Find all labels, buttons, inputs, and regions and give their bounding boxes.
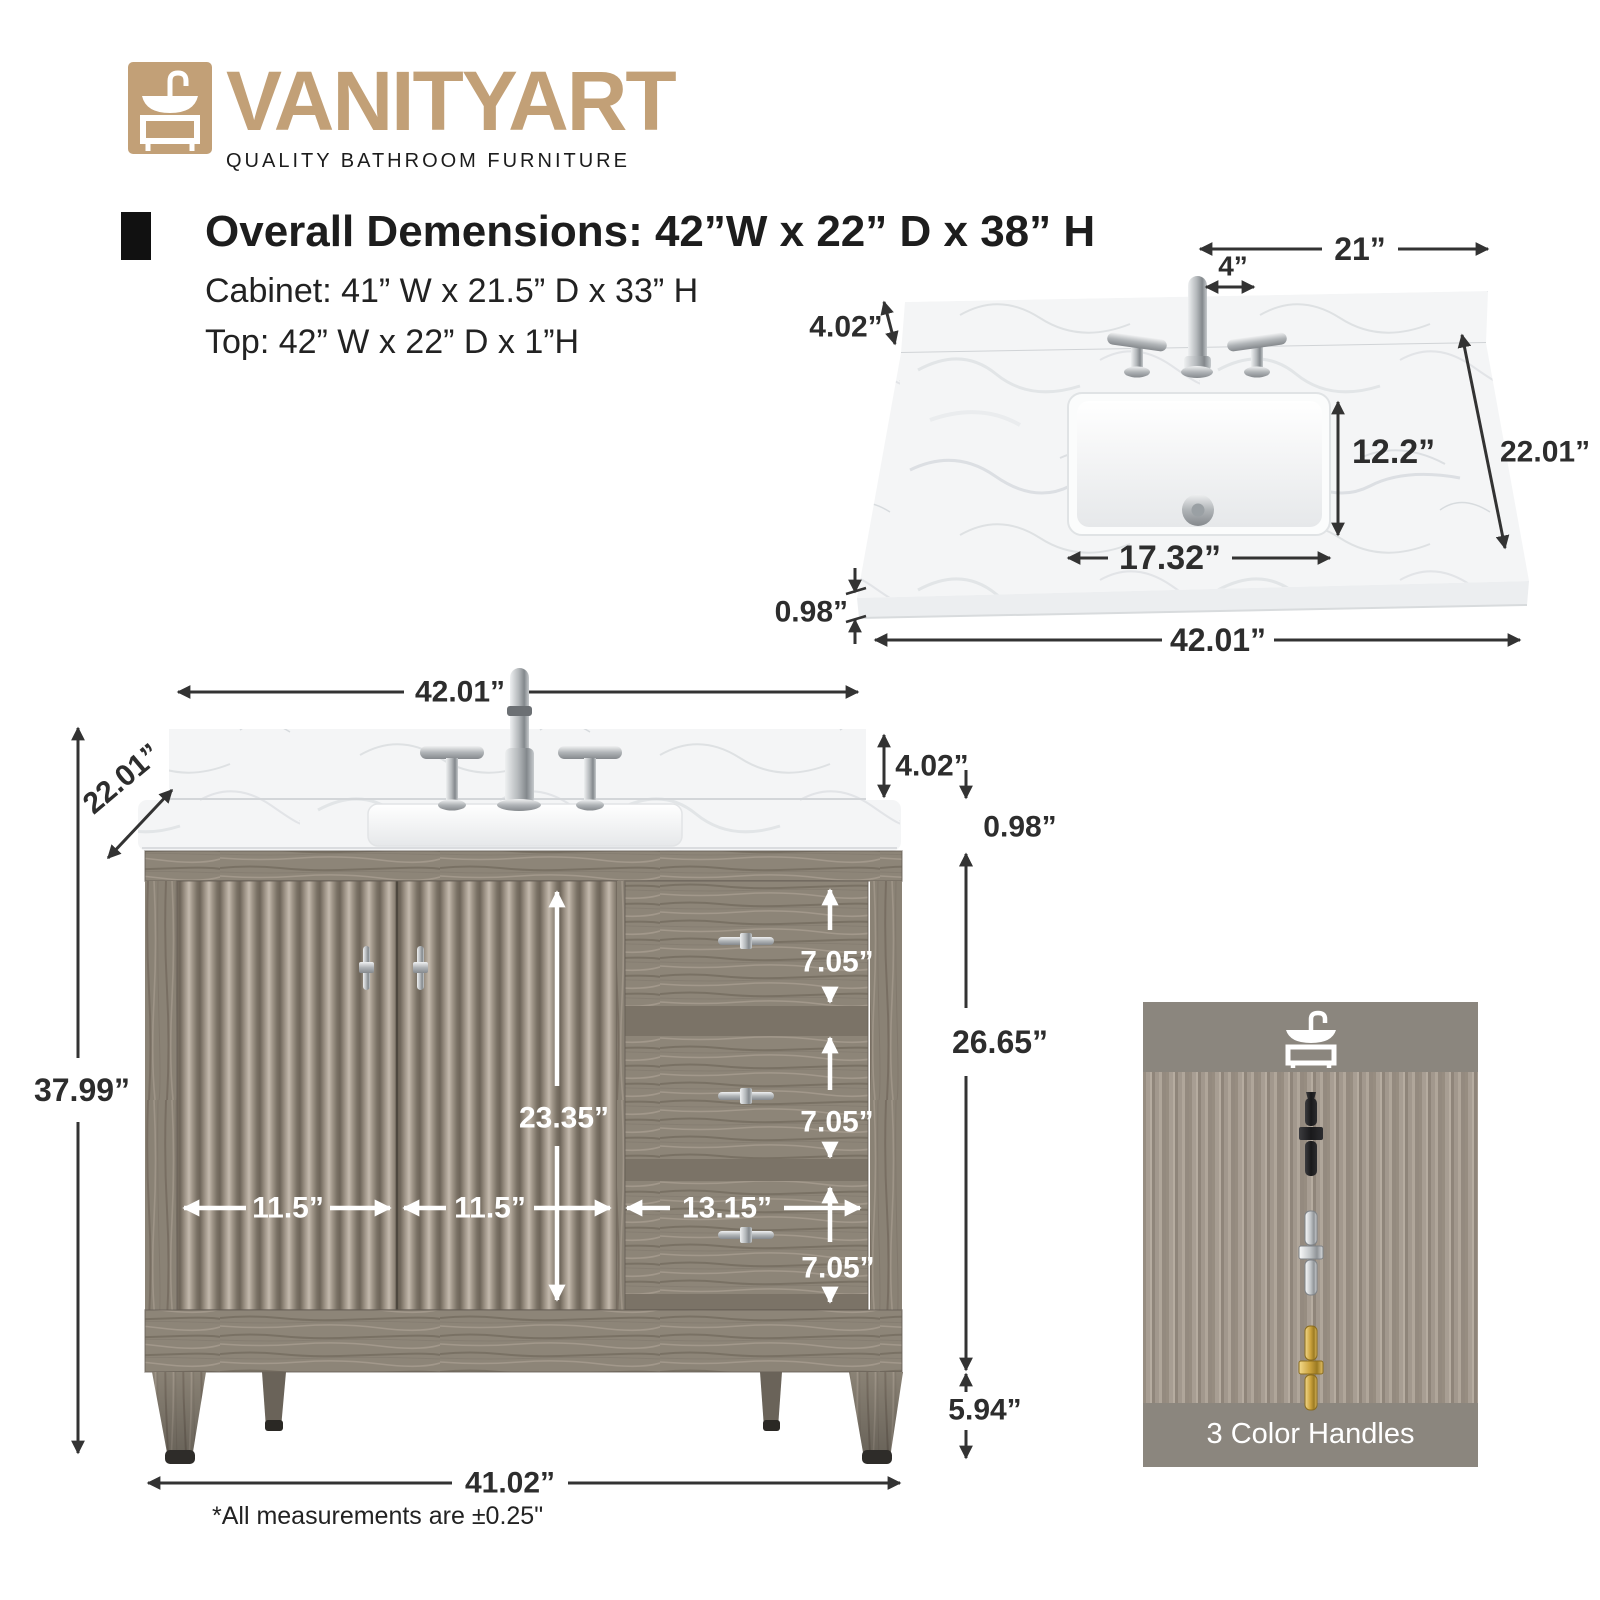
vanity-sink-panel-icon	[1278, 1008, 1344, 1068]
countertop-plan-view: 21” 4” 4.02” 12.2” 22.01” 17.32” 0.98”	[775, 231, 1590, 658]
dim-42-01-front: 42.01”	[415, 676, 505, 709]
dim-21: 21”	[1334, 231, 1386, 267]
vanity-spec-sheet: VANITYART QUALITY BATHROOM FURNITURE Ove…	[0, 0, 1600, 1600]
dim-41-02: 41.02”	[465, 1467, 555, 1500]
plan-sink	[1068, 393, 1330, 535]
cabinet-right-stile	[870, 881, 902, 1372]
drawer-rail-1	[625, 1006, 868, 1036]
dim-13-15: 13.15”	[682, 1192, 772, 1225]
dim-7-05-drawer1: 7.05”	[800, 946, 873, 979]
drawer-rail-2	[625, 1159, 868, 1181]
cabinet-legs	[152, 1372, 903, 1464]
handle-option-gold	[1288, 1322, 1334, 1414]
dim-23-35: 23.35”	[519, 1102, 609, 1135]
vanity-front-view: 42.01” 22.01” 4.02”	[34, 668, 1057, 1500]
handle-option-black	[1288, 1088, 1334, 1180]
dim-4: 4”	[1218, 251, 1248, 282]
dim-37-99: 37.99”	[34, 1072, 130, 1108]
dim-26-65: 26.65”	[952, 1024, 1048, 1060]
handle-option-chrome	[1288, 1207, 1334, 1299]
dim-22-01-plan: 22.01”	[1500, 436, 1590, 469]
dim-11-5-left: 11.5”	[252, 1192, 324, 1225]
dim-11-5-right: 11.5”	[454, 1192, 526, 1225]
dim-0-98-plan: 0.98”	[775, 596, 848, 629]
cabinet-top-rail	[145, 851, 902, 881]
dim-7-05-drawer2: 7.05”	[800, 1106, 873, 1139]
dim-12-2: 12.2”	[1352, 433, 1435, 471]
cabinet-bottom-rail	[145, 1310, 902, 1372]
dim-5-94: 5.94”	[948, 1394, 1021, 1427]
cabinet-body	[145, 851, 903, 1464]
dim-7-05-drawer3: 7.05”	[801, 1252, 874, 1285]
dim-17-32: 17.32”	[1119, 539, 1221, 577]
dim-4-02-plan: 4.02”	[809, 311, 882, 344]
handle-selection-panel: 3 Color Handles Selection	[1143, 1002, 1478, 1467]
dim-0-98-front: 0.98”	[983, 811, 1056, 844]
cabinet-left-stile	[145, 881, 177, 1372]
dim-42-01-plan: 42.01”	[1170, 622, 1266, 658]
measurement-tolerance-note: *All measurements are ±0.25"	[212, 1502, 543, 1531]
handle-panel-caption: 3 Color Handles Selection	[1143, 1403, 1478, 1467]
plan-spout	[1188, 276, 1207, 368]
wood-swatch	[1143, 1072, 1478, 1403]
dim-4-02-front: 4.02”	[895, 750, 968, 783]
